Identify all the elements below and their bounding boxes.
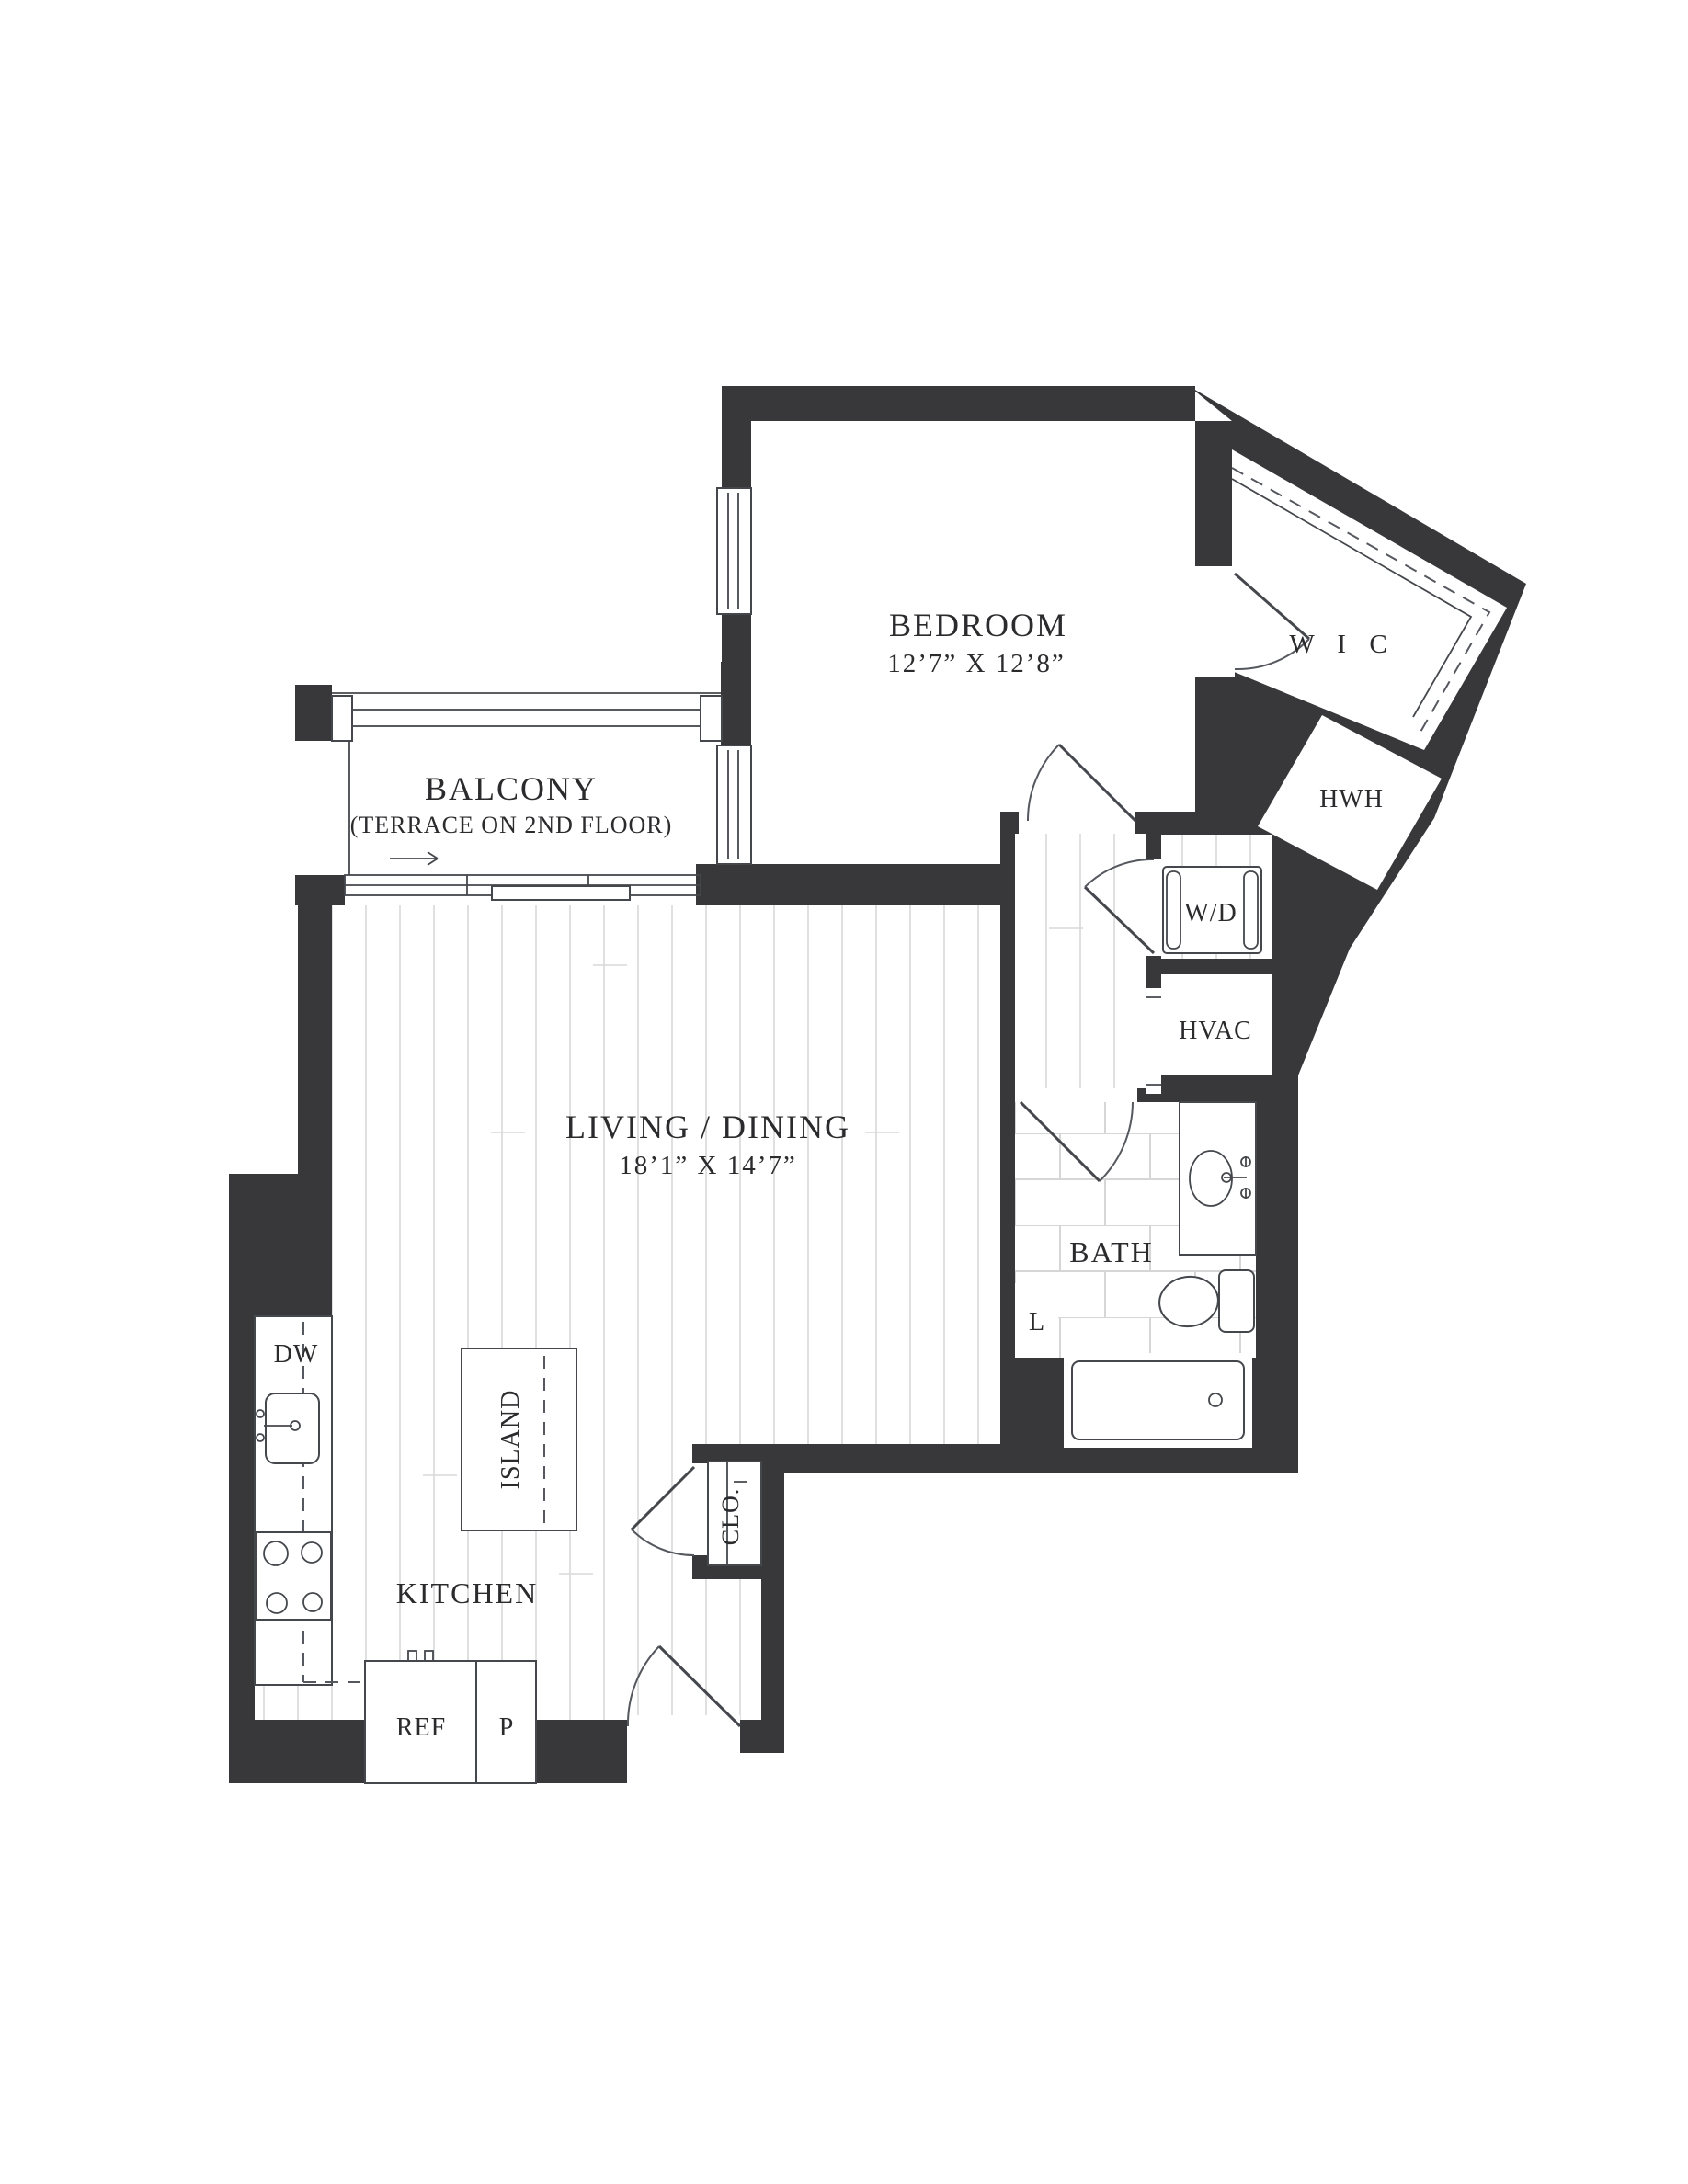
- bedroom-door-opening: [1019, 812, 1135, 834]
- kitchen-corner-wall: [229, 1174, 332, 1316]
- balcony-west-post-wall: [295, 685, 332, 741]
- bathtub: [1072, 1361, 1244, 1439]
- linen-label: L: [1029, 1308, 1045, 1337]
- balcony-southwest-wall: [295, 875, 345, 905]
- pantry-label: P: [499, 1713, 515, 1742]
- stove: [256, 1532, 331, 1620]
- vanity: [1180, 1102, 1256, 1255]
- sliding-door-panel: [492, 886, 630, 900]
- balcony-rail-post-left: [332, 696, 352, 741]
- canvas-background: [0, 0, 1688, 2184]
- bedroom-window-lower: [717, 745, 751, 864]
- living-west-wall: [298, 905, 332, 1174]
- hwh-label: HWH: [1319, 785, 1384, 813]
- bedroom-west-wall-mid: [721, 662, 751, 745]
- island-label: ISLAND: [496, 1390, 525, 1490]
- living-dining-label: LIVING / DINING: [565, 1109, 850, 1145]
- bedroom-window-upper: [717, 488, 751, 614]
- floor-plan: BEDROOM 12’7” X 12’8” BALCONY (TERRACE O…: [0, 0, 1688, 2184]
- living-dining-dimensions: 18’1” X 14’7”: [619, 1151, 797, 1180]
- entry-east-wall: [761, 1579, 784, 1726]
- kitchen-counter: [255, 1316, 332, 1685]
- wd-door-opening: [1146, 859, 1161, 956]
- balcony-label: BALCONY: [425, 770, 598, 807]
- clo-door-opening: [692, 1463, 708, 1555]
- dishwasher-label: DW: [274, 1340, 319, 1369]
- wic-label: W I C: [1289, 630, 1395, 659]
- hvac-label: HVAC: [1179, 1017, 1252, 1045]
- bedroom-label: BEDROOM: [889, 607, 1067, 643]
- balcony-note: (TERRACE ON 2ND FLOOR): [350, 812, 673, 838]
- balcony-rail-post-right: [701, 696, 722, 741]
- floor-plan-page: BEDROOM 12’7” X 12’8” BALCONY (TERRACE O…: [0, 0, 1688, 2184]
- clo-label: CLO.: [717, 1488, 744, 1546]
- entry-door-opening: [627, 1715, 740, 1787]
- hvac-door-opening: [1146, 988, 1161, 1094]
- wic-door-opening: [1195, 566, 1235, 677]
- washer-dryer-label: W/D: [1184, 899, 1237, 927]
- bath-label: BATH: [1069, 1235, 1154, 1268]
- kitchen-sink: [257, 1393, 319, 1463]
- bath-door-opening: [1015, 1088, 1137, 1102]
- refrigerator-label: REF: [396, 1713, 446, 1742]
- bedroom-north-wall: [722, 386, 1195, 421]
- kitchen-west-wall: [229, 1316, 255, 1753]
- bedroom-south-wall: [696, 864, 1015, 905]
- kitchen-label: KITCHEN: [396, 1576, 538, 1610]
- bedroom-dimensions: 12’7” X 12’8”: [887, 649, 1066, 678]
- bath-south-wall: [784, 1444, 1298, 1473]
